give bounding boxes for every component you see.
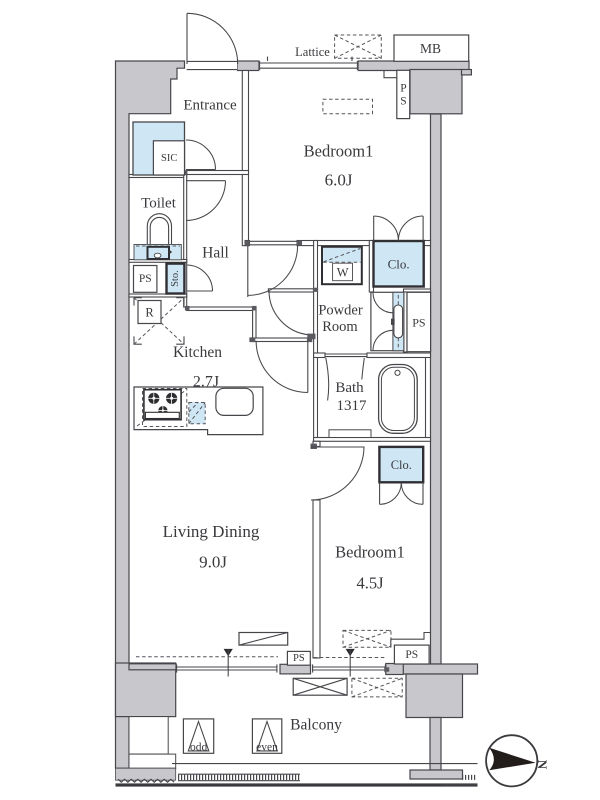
svg-text:Living Dining: Living Dining bbox=[163, 522, 260, 541]
svg-text:Hall: Hall bbox=[202, 244, 229, 261]
svg-text:Bedroom1: Bedroom1 bbox=[304, 142, 374, 161]
svg-text:Kitchen: Kitchen bbox=[173, 344, 222, 361]
svg-text:Toilet: Toilet bbox=[141, 196, 177, 212]
svg-text:Clo.: Clo. bbox=[391, 458, 412, 472]
svg-text:6.0J: 6.0J bbox=[325, 171, 353, 190]
svg-text:Lattice: Lattice bbox=[295, 45, 330, 59]
svg-text:Clo.: Clo. bbox=[388, 256, 410, 271]
svg-text:R: R bbox=[145, 306, 154, 320]
svg-text:4.5J: 4.5J bbox=[356, 574, 384, 593]
svg-text:N: N bbox=[535, 760, 550, 770]
svg-text:9.0J: 9.0J bbox=[199, 553, 227, 572]
svg-text:PS: PS bbox=[412, 315, 425, 329]
svg-text:Room: Room bbox=[322, 319, 358, 335]
svg-text:SIC: SIC bbox=[161, 153, 177, 164]
svg-text:PS: PS bbox=[405, 649, 418, 661]
svg-text:1317: 1317 bbox=[337, 398, 368, 414]
svg-text:Powder: Powder bbox=[318, 303, 362, 319]
svg-text:2.7J: 2.7J bbox=[193, 374, 219, 391]
svg-text:odd: odd bbox=[190, 742, 208, 754]
svg-text:Sto.: Sto. bbox=[170, 270, 181, 287]
svg-text:even: even bbox=[256, 742, 278, 754]
svg-text:S: S bbox=[400, 96, 406, 108]
svg-text:MB: MB bbox=[420, 41, 441, 56]
svg-text:Bedroom1: Bedroom1 bbox=[335, 543, 405, 562]
svg-text:PS: PS bbox=[293, 653, 305, 664]
svg-text:Bath: Bath bbox=[335, 380, 364, 396]
svg-text:Balcony: Balcony bbox=[290, 717, 342, 734]
svg-text:P: P bbox=[400, 83, 406, 95]
svg-text:Entrance: Entrance bbox=[183, 98, 237, 114]
svg-text:PS: PS bbox=[139, 273, 152, 285]
svg-text:W: W bbox=[337, 265, 349, 279]
